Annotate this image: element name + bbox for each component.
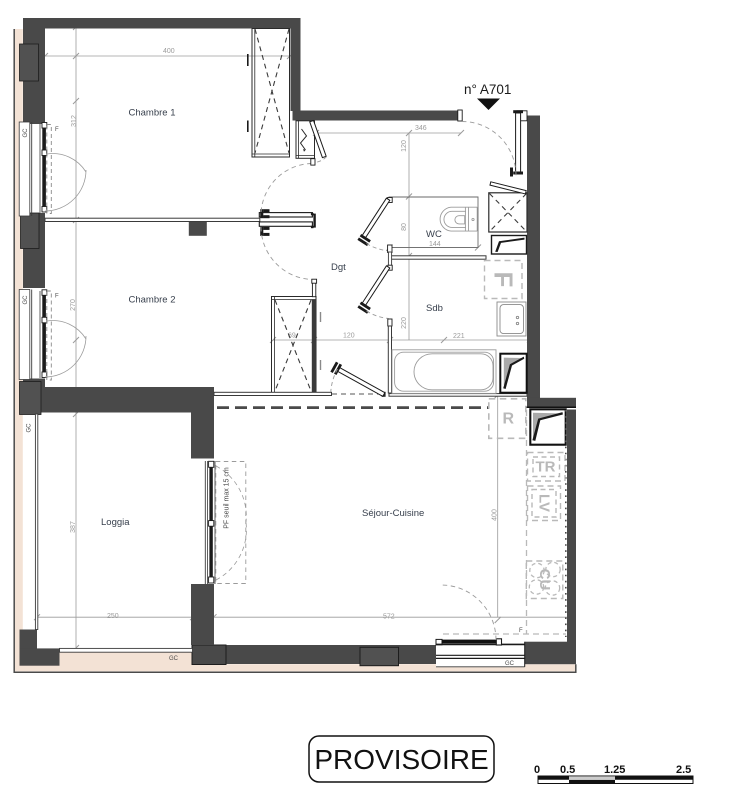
svg-text:80: 80 — [401, 223, 408, 231]
svg-text:250: 250 — [107, 613, 119, 620]
svg-text:F: F — [489, 272, 519, 288]
svg-text:346: 346 — [415, 125, 427, 132]
svg-text:0: 0 — [534, 764, 540, 776]
svg-text:221: 221 — [453, 333, 465, 340]
svg-text:1.25: 1.25 — [604, 764, 625, 776]
svg-text:PROVISOIRE: PROVISOIRE — [314, 744, 488, 775]
svg-text:270: 270 — [70, 299, 77, 311]
svg-text:GC: GC — [23, 128, 29, 138]
svg-text:120: 120 — [343, 333, 355, 340]
svg-text:GC: GC — [23, 295, 29, 305]
svg-text:387: 387 — [70, 521, 77, 533]
svg-text:Sdb: Sdb — [426, 303, 443, 314]
svg-text:144: 144 — [429, 241, 441, 248]
svg-text:400: 400 — [163, 48, 175, 55]
svg-text:120: 120 — [401, 140, 408, 152]
svg-text:312: 312 — [71, 115, 78, 127]
svg-text:Chambre 1: Chambre 1 — [129, 108, 176, 119]
svg-text:GC: GC — [27, 423, 33, 433]
svg-text:F: F — [55, 127, 59, 133]
svg-text:220: 220 — [401, 317, 408, 329]
svg-text:R: R — [503, 411, 515, 428]
svg-text:GC: GC — [505, 661, 515, 667]
svg-text:F: F — [519, 628, 523, 634]
svg-text:LV: LV — [536, 494, 553, 512]
svg-text:PF seuil max 15 cm: PF seuil max 15 cm — [224, 467, 231, 529]
svg-text:Loggia: Loggia — [101, 517, 130, 528]
svg-text:400: 400 — [492, 509, 499, 521]
svg-text:GC: GC — [169, 656, 179, 662]
svg-text:572: 572 — [383, 614, 395, 621]
svg-text:TR: TR — [536, 459, 556, 476]
svg-text:F: F — [55, 294, 59, 300]
svg-text:Séjour-Cuisine: Séjour-Cuisine — [362, 508, 424, 519]
svg-text:WC: WC — [426, 229, 442, 240]
svg-text:2.5: 2.5 — [676, 764, 691, 776]
svg-text:Dgt: Dgt — [331, 262, 346, 273]
svg-text:0.5: 0.5 — [560, 764, 575, 776]
svg-text:CU: CU — [536, 569, 553, 591]
svg-text:Chambre 2: Chambre 2 — [129, 295, 176, 306]
svg-text:n° A701: n° A701 — [464, 82, 511, 97]
